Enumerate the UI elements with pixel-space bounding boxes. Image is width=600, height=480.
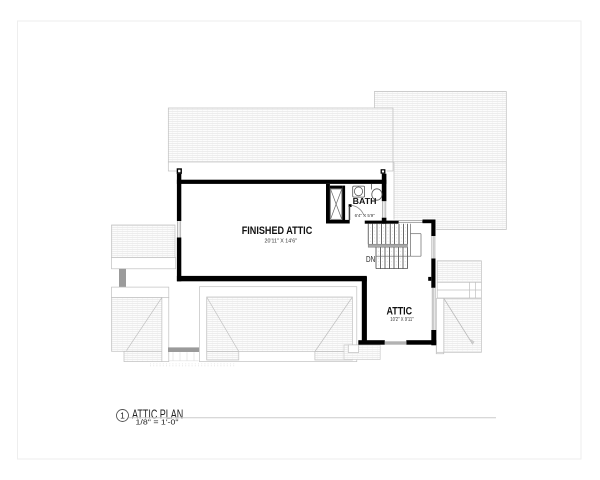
svg-text:1/8" = 1'-0": 1/8" = 1'-0" [136, 420, 180, 427]
svg-text:6'4" X 5'9": 6'4" X 5'9" [355, 213, 376, 218]
svg-text:1: 1 [120, 411, 125, 421]
svg-text:FINISHED ATTIC: FINISHED ATTIC [242, 225, 313, 237]
svg-text:ATTIC: ATTIC [387, 305, 413, 317]
svg-text:BATH: BATH [353, 196, 377, 206]
svg-text:10'2" X 9'11": 10'2" X 9'11" [390, 317, 414, 323]
svg-text:20'11" X 14'6": 20'11" X 14'6" [265, 238, 298, 244]
svg-text:DN: DN [366, 254, 375, 264]
